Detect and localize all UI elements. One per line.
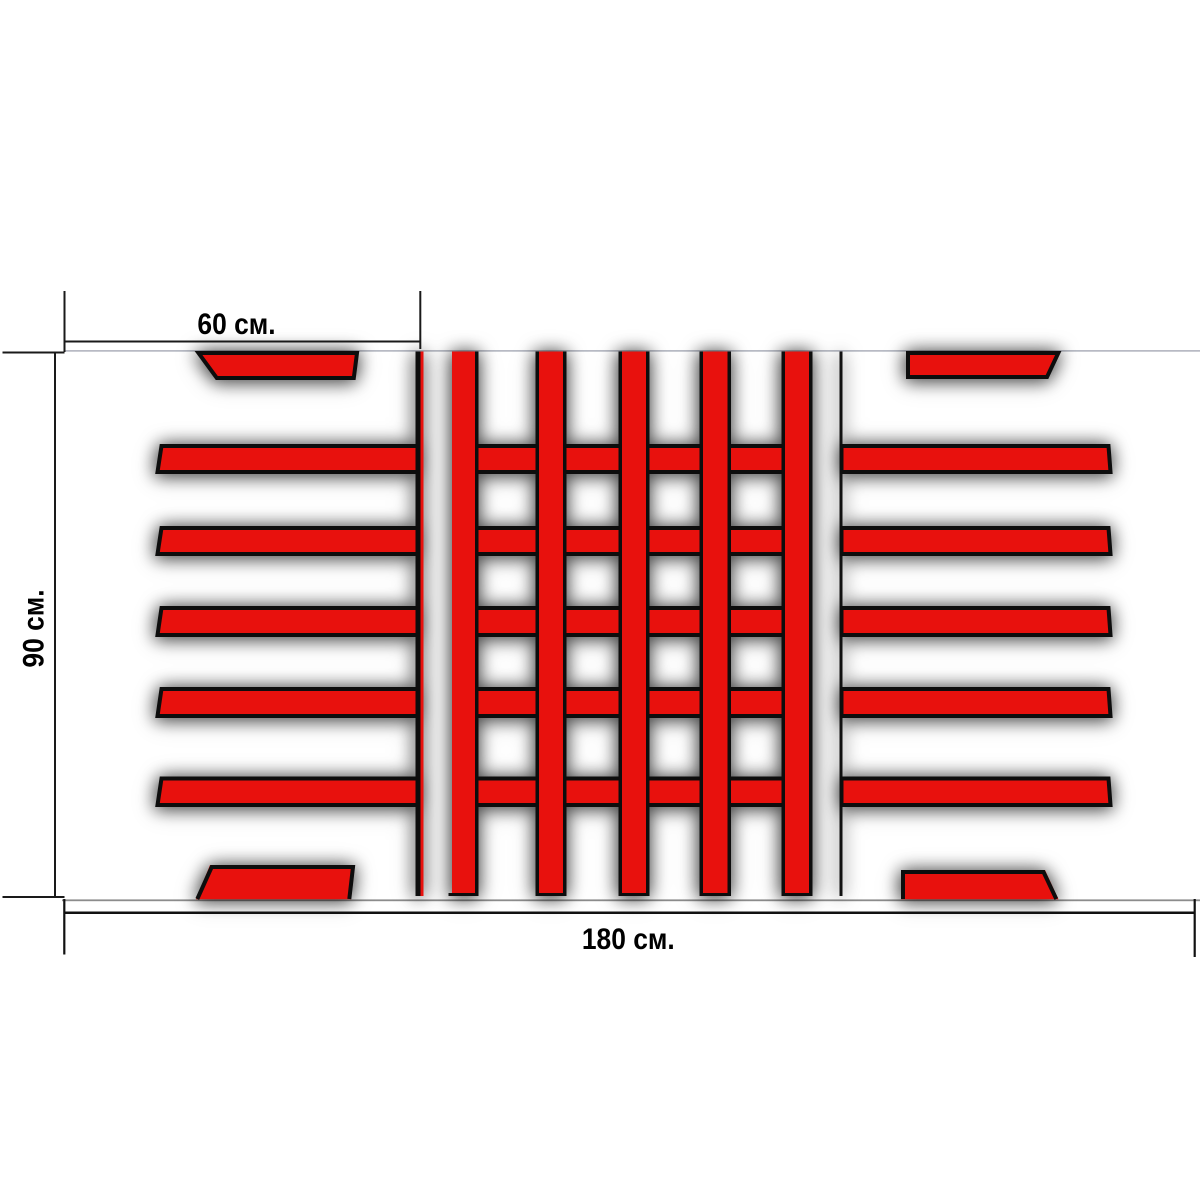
svg-text:90 см.: 90 см.	[16, 589, 50, 667]
svg-text:180 см.: 180 см.	[582, 921, 675, 955]
svg-text:60 см.: 60 см.	[197, 306, 275, 340]
